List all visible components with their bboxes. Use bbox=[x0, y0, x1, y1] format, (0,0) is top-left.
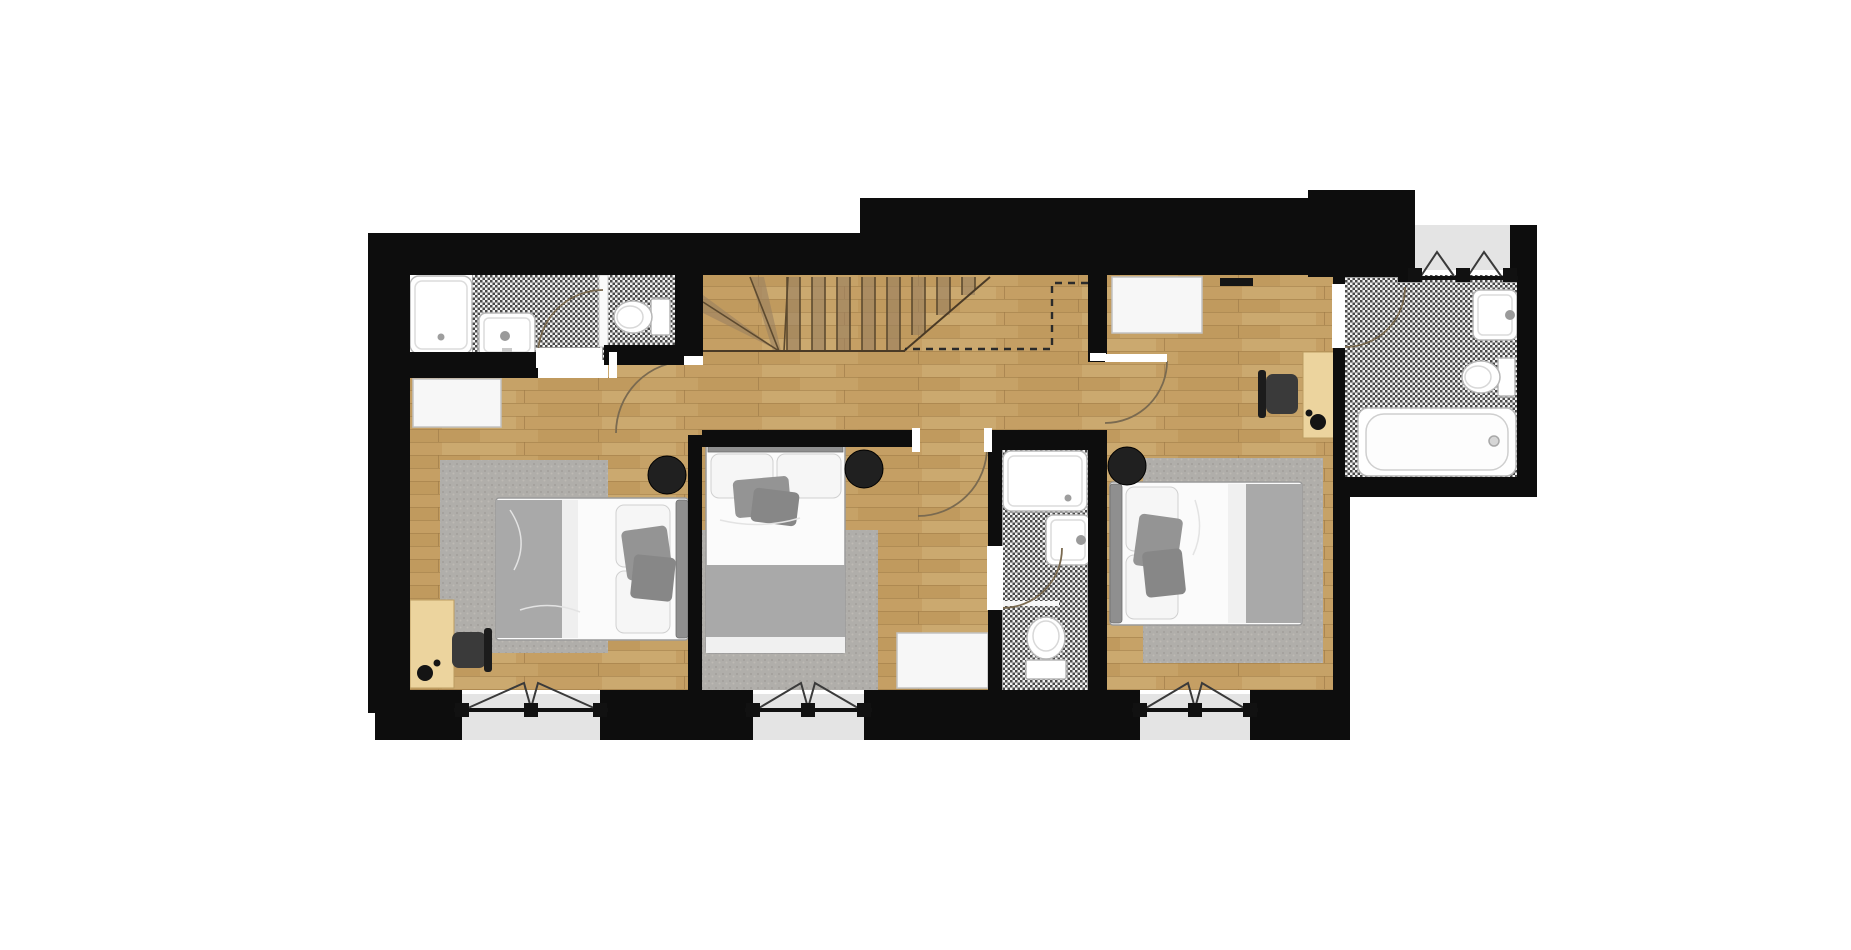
threshold-bedroom-right bbox=[1090, 353, 1106, 361]
window-bedroom-middle bbox=[745, 683, 872, 740]
threshold-bedroom-left-a bbox=[609, 352, 617, 378]
threshold-shower-middle bbox=[987, 546, 1003, 610]
round-side-table bbox=[845, 450, 883, 488]
washbasin bbox=[1046, 515, 1090, 565]
shower-drain bbox=[1065, 495, 1072, 502]
threshold-bedroom-left-b bbox=[684, 356, 703, 365]
threshold-bathroom-top-left bbox=[536, 348, 602, 368]
shower-drain bbox=[438, 334, 445, 341]
toilet bbox=[1462, 358, 1515, 396]
double-bed bbox=[706, 437, 845, 653]
door-leaf-bedroom-right bbox=[1105, 354, 1167, 362]
threshold-bedroom-middle-a bbox=[912, 428, 920, 452]
office-chair bbox=[452, 628, 492, 672]
half-partition bbox=[1003, 601, 1059, 606]
dresser bbox=[1112, 277, 1202, 333]
floor-plan: apartment upper-floor plan (top-down ren… bbox=[0, 0, 1851, 950]
dresser bbox=[897, 633, 988, 688]
washbasin bbox=[479, 313, 535, 357]
window-bedroom-left bbox=[454, 683, 608, 740]
window-bedroom-right bbox=[1132, 683, 1258, 740]
double-bed bbox=[496, 498, 688, 640]
bathtub bbox=[1358, 408, 1516, 476]
double-bed bbox=[1110, 482, 1302, 625]
threshold-bedroom-middle-b bbox=[984, 428, 992, 452]
toilet bbox=[614, 299, 670, 335]
toilet bbox=[1026, 617, 1066, 679]
wall-rail bbox=[1220, 278, 1253, 286]
dresser bbox=[413, 379, 501, 427]
office-chair bbox=[1258, 370, 1298, 418]
shower-tray bbox=[410, 276, 472, 354]
round-side-table bbox=[648, 456, 686, 494]
floor-plan-svg: apartment upper-floor plan (top-down ren… bbox=[0, 0, 1851, 950]
glass-partition bbox=[599, 275, 608, 347]
round-side-table bbox=[1108, 447, 1146, 485]
shower-tray bbox=[1003, 451, 1087, 511]
washbasin bbox=[1473, 290, 1517, 340]
threshold-bathroom-ensuite bbox=[1332, 284, 1345, 348]
